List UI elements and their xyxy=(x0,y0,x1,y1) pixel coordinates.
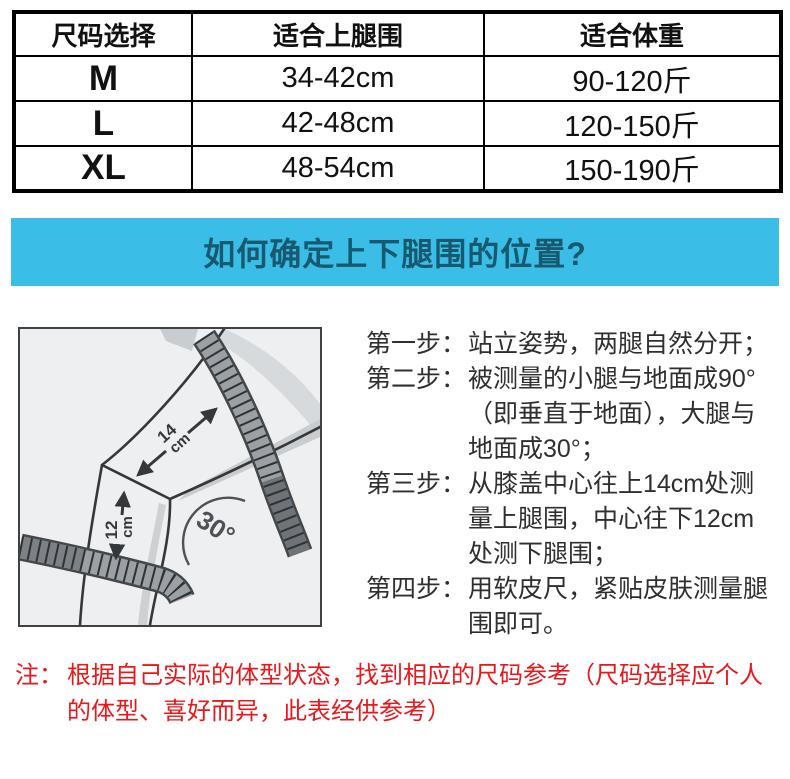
step-label: 第三步： xyxy=(366,467,468,572)
section-title-banner: 如何确定上下腿围的位置? xyxy=(11,218,779,286)
thigh-range: 48-54cm xyxy=(192,146,484,191)
size-label: L xyxy=(14,101,192,146)
table-row-m: M 34-42cm 90-120斤 xyxy=(14,56,781,101)
step-text: 被测量的小腿与地面成90°（即垂直于地面），大腿与地面成30°； xyxy=(468,362,773,467)
svg-text:cm: cm xyxy=(119,516,136,538)
arrow-down-icon xyxy=(116,545,117,558)
upper-measure-label: 14 cm xyxy=(154,417,194,458)
arrow-lower-icon xyxy=(138,451,166,475)
weight-range: 90-120斤 xyxy=(484,56,781,101)
angle-label: 30° xyxy=(191,504,240,551)
lower-measure-label: 12 cm xyxy=(102,516,136,539)
thigh-range: 42-48cm xyxy=(192,101,484,146)
step-1: 第一步： 站立姿势，两腿自然分开； xyxy=(366,327,773,362)
note-label: 注： xyxy=(15,658,67,730)
step-text: 用软皮尺，紧贴皮肤测量腿围即可。 xyxy=(468,572,773,642)
thigh-range: 34-42cm xyxy=(192,56,484,101)
step-label: 第四步： xyxy=(366,572,468,642)
step-3: 第三步： 从膝盖中心往上14cm处测量上腿围，中心往下12cm处测下腿围； xyxy=(366,467,773,572)
tape-measure-lower xyxy=(20,547,182,599)
section-title: 如何确定上下腿围的位置? xyxy=(203,229,587,275)
size-chart: 尺码选择 适合上腿围 适合体重 M 34-42cm 90-120斤 L 42-4… xyxy=(12,10,779,193)
step-label: 第二步： xyxy=(366,362,468,467)
weight-range: 120-150斤 xyxy=(484,101,781,146)
step-text: 站立姿势，两腿自然分开； xyxy=(468,327,773,362)
note-text: 根据自己实际的体型状态，找到相应的尺码参考（尺码选择应个人的体型、喜好而异，此表… xyxy=(67,658,767,730)
size-table-header-row: 尺码选择 适合上腿围 适合体重 xyxy=(14,12,781,56)
measurement-guide: 14 cm 12 cm 30° 第一步： 站立姿势，两腿自然分开； 第二步： 被… xyxy=(18,327,790,642)
knee-measure-diagram: 14 cm 12 cm 30° xyxy=(18,327,322,627)
step-2: 第二步： 被测量的小腿与地面成90°（即垂直于地面），大腿与地面成30°； xyxy=(366,362,773,467)
measure-steps: 第一步： 站立姿势，两腿自然分开； 第二步： 被测量的小腿与地面成90°（即垂直… xyxy=(366,327,773,642)
weight-range: 150-190斤 xyxy=(484,146,781,191)
arrow-upper-icon xyxy=(188,409,216,433)
column-header-weight: 适合体重 xyxy=(484,12,781,56)
step-label: 第一步： xyxy=(366,327,468,362)
table-row-l: L 42-48cm 120-150斤 xyxy=(14,101,781,146)
arrow-up-icon xyxy=(122,493,124,515)
size-note: 注： 根据自己实际的体型状态，找到相应的尺码参考（尺码选择应个人的体型、喜好而异… xyxy=(15,658,790,730)
leg-diagram: 14 cm 12 cm 30° xyxy=(20,329,320,625)
size-label: M xyxy=(14,56,192,101)
column-header-size: 尺码选择 xyxy=(14,12,192,56)
size-table: 尺码选择 适合上腿围 适合体重 M 34-42cm 90-120斤 L 42-4… xyxy=(12,10,783,193)
step-4: 第四步： 用软皮尺，紧贴皮肤测量腿围即可。 xyxy=(366,572,773,642)
column-header-thigh: 适合上腿围 xyxy=(192,12,484,56)
size-guide-page: 尺码选择 适合上腿围 适合体重 M 34-42cm 90-120斤 L 42-4… xyxy=(0,0,790,779)
step-text: 从膝盖中心往上14cm处测量上腿围，中心往下12cm处测下腿围； xyxy=(468,467,773,572)
table-row-xl: XL 48-54cm 150-190斤 xyxy=(14,146,781,191)
size-label: XL xyxy=(14,146,192,191)
